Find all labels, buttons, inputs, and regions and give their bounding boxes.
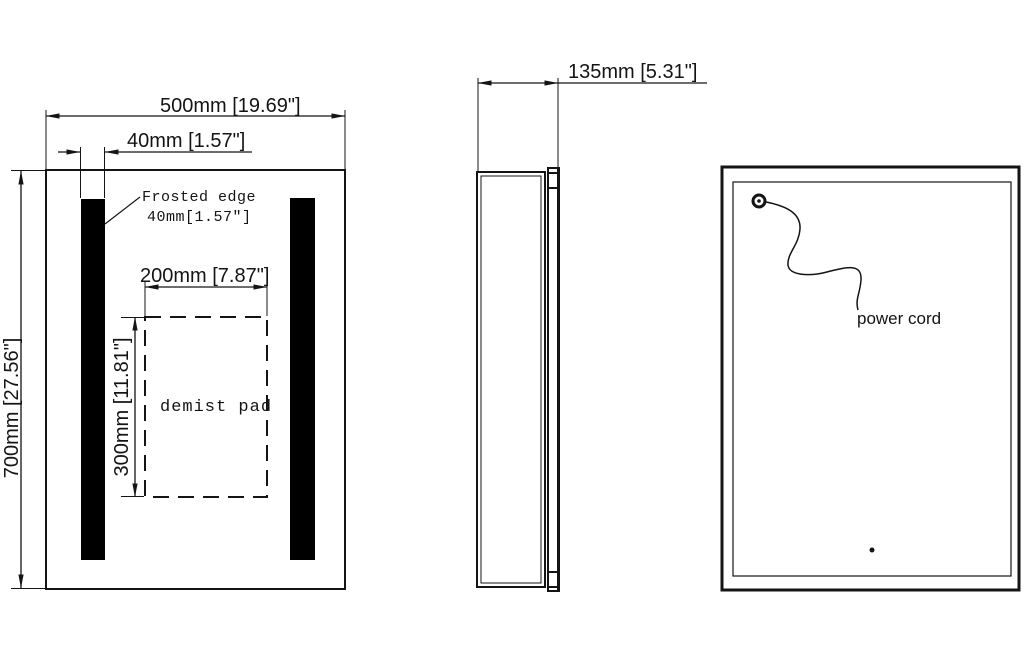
side-body-inner-wall [481,176,541,583]
power-cord-label: power cord [857,310,941,327]
dim-label-depth-135mm: 135mm [5.31"] [568,62,697,82]
dim-label-demist-width-200mm: 200mm [7.87"] [140,266,269,286]
frosted-edge-label-line1: Frosted edge [142,190,256,205]
technical-drawing-canvas: 500mm [19.69"] 40mm [1.57"] 700mm [27.56… [0,0,1024,657]
back-view [722,167,1019,590]
side-view [477,78,707,591]
frosted-edge-label-line2: 40mm[1.57″] [147,210,252,225]
drawing-linework [0,0,1024,657]
frosted-edge-leader-line [105,197,140,224]
back-outer-frame [722,167,1019,590]
dim-label-width-500mm: 500mm [19.69"] [160,96,301,116]
dim-label-demist-height-300mm: 300mm [11.81"] [112,337,132,476]
side-body-outline [477,172,545,587]
dim-label-strip-40mm: 40mm [1.57"] [127,131,245,151]
front-view [11,110,345,589]
led-strip-right [290,198,315,560]
led-strip-left [81,199,105,560]
dim-label-height-700mm: 700mm [27.56"] [2,338,22,479]
back-panel-dot [870,548,875,553]
demist-pad-label: demist pad [160,399,272,416]
power-inlet-pin [757,199,761,203]
back-inner-panel [733,182,1011,576]
power-cord-line [766,202,861,310]
